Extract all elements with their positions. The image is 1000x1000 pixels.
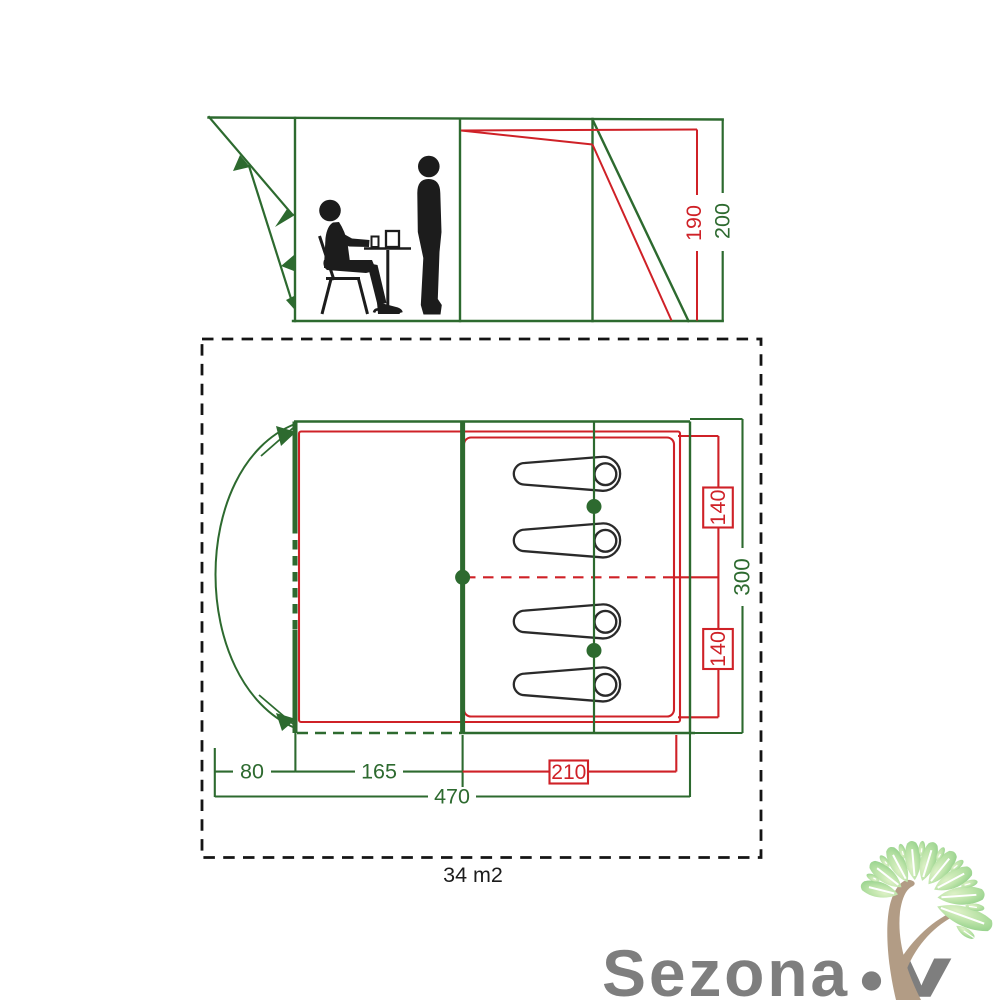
svg-text:300: 300 [730, 558, 755, 596]
svg-text:140: 140 [706, 490, 730, 526]
svg-text:Sezona: Sezona [602, 936, 850, 1000]
svg-text:210: 210 [551, 761, 586, 784]
svg-text:190: 190 [682, 205, 706, 241]
svg-text:34 m2: 34 m2 [443, 863, 503, 887]
svg-text:200: 200 [711, 203, 735, 239]
svg-text:165: 165 [361, 760, 397, 784]
svg-text:470: 470 [434, 785, 470, 809]
svg-text:140: 140 [706, 631, 730, 667]
svg-text:80: 80 [240, 760, 264, 784]
